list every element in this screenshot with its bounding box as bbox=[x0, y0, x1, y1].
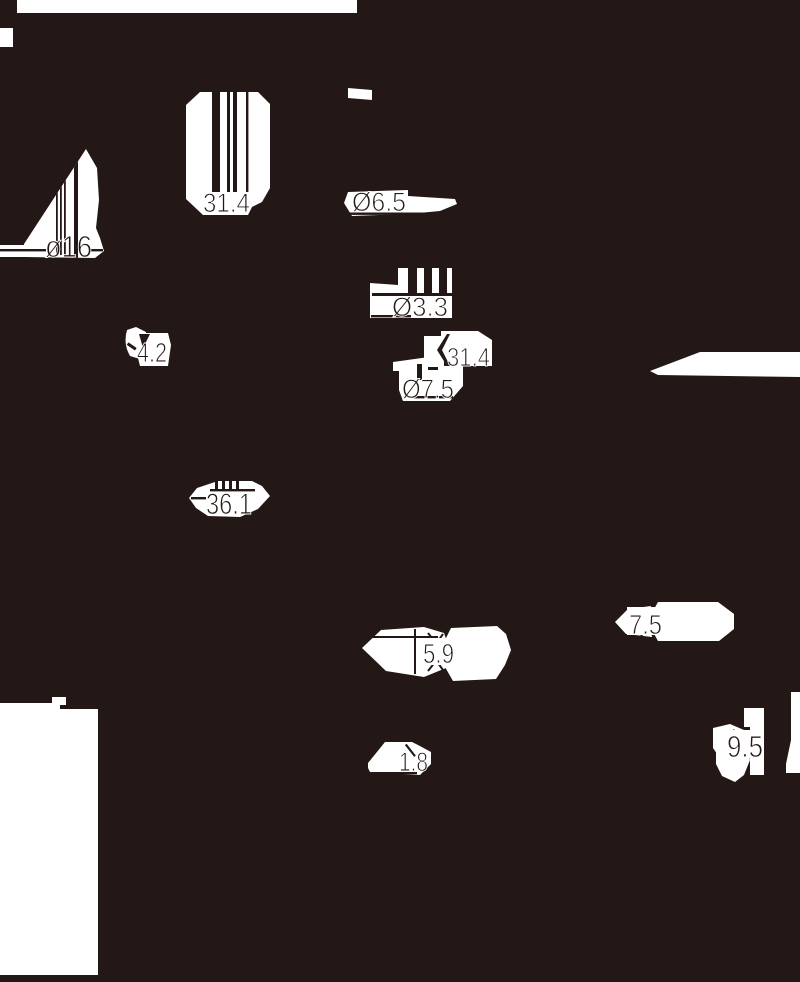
svg-text:5.9: 5.9 bbox=[423, 638, 454, 669]
svg-text:31.4: 31.4 bbox=[203, 188, 250, 218]
svg-text:31.4: 31.4 bbox=[447, 342, 490, 372]
svg-text:Ø7.5: Ø7.5 bbox=[402, 374, 454, 404]
svg-text:Ø6.5: Ø6.5 bbox=[352, 187, 406, 217]
svg-text:9.5: 9.5 bbox=[727, 729, 763, 764]
svg-text:7.5: 7.5 bbox=[629, 609, 662, 640]
svg-text:36.1: 36.1 bbox=[206, 488, 252, 521]
svg-text:1.8: 1.8 bbox=[399, 747, 428, 777]
svg-text:ø16: ø16 bbox=[45, 229, 92, 264]
svg-text:Ø3.3: Ø3.3 bbox=[392, 292, 448, 322]
svg-text:4.2: 4.2 bbox=[137, 337, 167, 368]
